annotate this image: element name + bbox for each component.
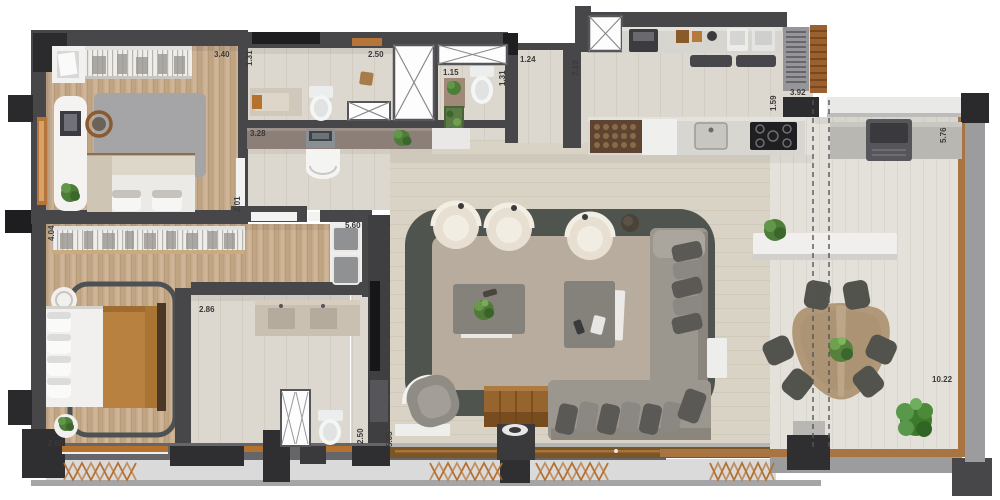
svg-text:7.10: 7.10 bbox=[571, 60, 580, 76]
svg-text:5.60: 5.60 bbox=[345, 221, 361, 230]
svg-text:2.50: 2.50 bbox=[368, 50, 384, 59]
svg-text:1.31: 1.31 bbox=[498, 70, 507, 86]
svg-text:1.31: 1.31 bbox=[245, 50, 254, 66]
svg-text:3.40: 3.40 bbox=[214, 50, 230, 59]
svg-text:1.24: 1.24 bbox=[520, 55, 536, 64]
svg-text:2.60: 2.60 bbox=[48, 439, 64, 448]
svg-text:2.01: 2.01 bbox=[233, 196, 242, 212]
svg-text:2.50: 2.50 bbox=[356, 428, 365, 444]
svg-text:1.15: 1.15 bbox=[443, 68, 459, 77]
svg-text:2.86: 2.86 bbox=[199, 305, 215, 314]
svg-text:3.28: 3.28 bbox=[250, 129, 266, 138]
svg-text:4.04: 4.04 bbox=[47, 225, 56, 241]
svg-text:5.65: 5.65 bbox=[385, 431, 394, 447]
svg-text:1.59: 1.59 bbox=[769, 95, 778, 111]
svg-text:5.76: 5.76 bbox=[939, 127, 948, 143]
svg-text:3.92: 3.92 bbox=[790, 88, 806, 97]
svg-text:10.22: 10.22 bbox=[932, 375, 953, 384]
